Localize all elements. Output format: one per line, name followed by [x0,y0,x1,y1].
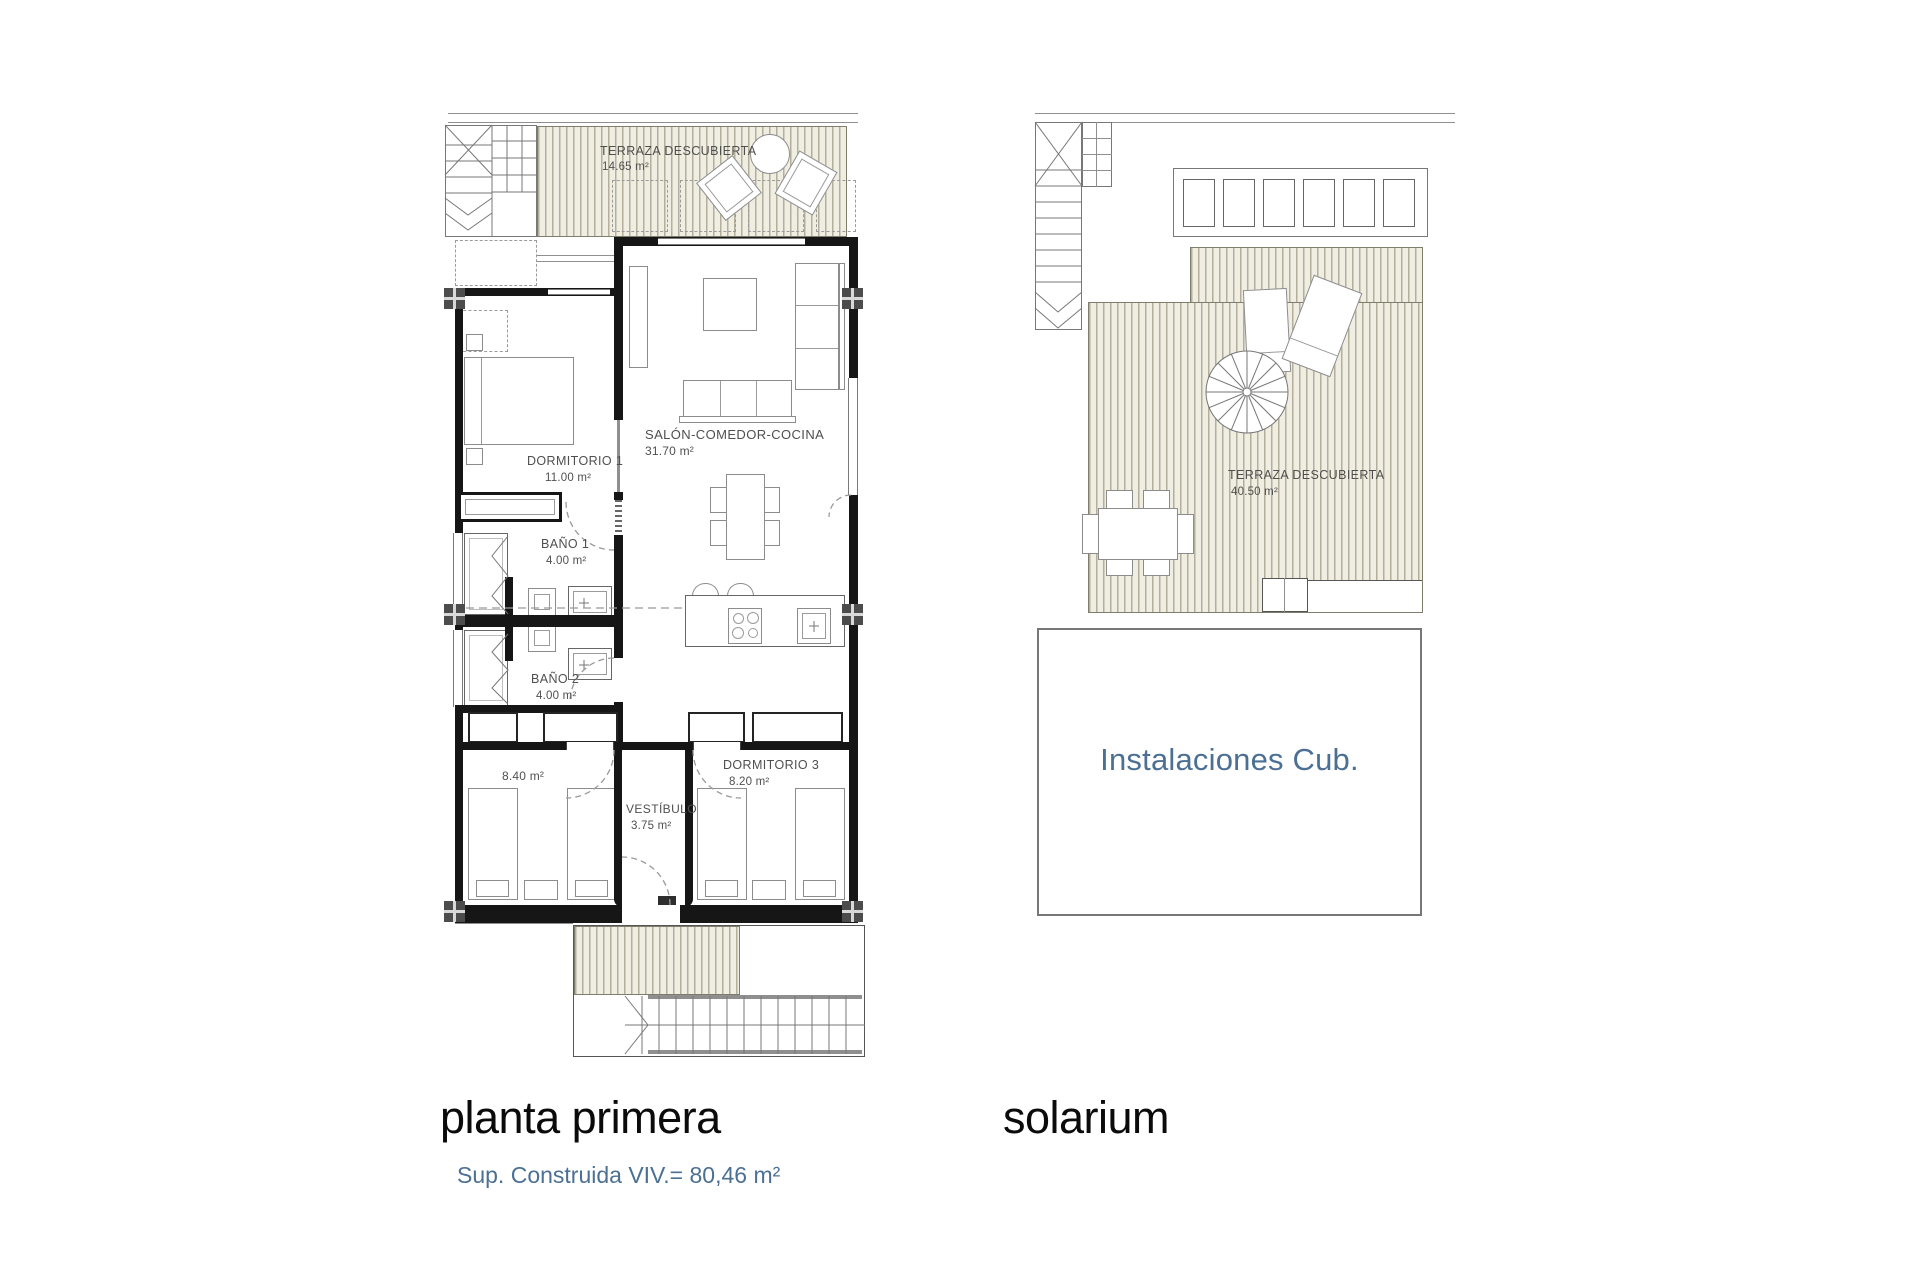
sun-lounger [1243,288,1291,374]
kitchen-sink [797,608,831,644]
wall [455,742,858,750]
stair-handrail [648,995,862,999]
door-opening [566,742,614,750]
nightstand [466,448,483,465]
roof-panel [1223,179,1255,227]
hob [728,608,762,644]
area-label-terraza1: 14.65 m² [602,161,649,174]
pillar [842,288,863,309]
room-label-banio1: BAÑO 1 [541,538,589,552]
porch-edge-line [537,255,614,256]
wall [455,615,623,627]
pergola-slat [612,180,668,232]
pillar [444,604,465,625]
roof-panel [1383,179,1415,227]
built-in-closet [688,712,745,743]
room-label-instalaciones: Instalaciones Cub. [1037,742,1422,778]
window [658,238,805,245]
pillar [842,604,863,625]
bed-pillow [803,880,836,897]
wardrobe [458,492,562,522]
patio-chair [1177,514,1194,554]
room-label-terraza2: TERRAZA DESCUBIERTA [1228,469,1384,483]
wall [614,492,623,500]
sofa-side [795,263,839,390]
nightstand [524,880,558,900]
solarium-stair [1035,122,1082,330]
area-label-dormitorio1: 11.00 m² [545,472,591,485]
toilet [528,624,556,652]
dining-table [726,474,765,560]
roof-panel [1263,179,1295,227]
built-in-closet [752,712,843,743]
pillar [444,901,465,922]
bed-pillow [476,880,509,897]
door-swing-arcs [466,495,851,905]
sofa-side-back [839,263,845,390]
nightstand [466,334,483,351]
grid-line [1082,170,1112,171]
stair-upper [445,125,537,237]
window [548,289,610,295]
area-label-dormitorio2: 8.40 m² [502,770,544,783]
door-opening [693,742,741,750]
deck-cutout [1307,580,1422,612]
sofa-main [683,380,792,418]
area-label-banio1: 4.00 m² [546,555,586,568]
room-label-terraza1: TERRAZA DESCUBIERTA [600,145,756,159]
wall [614,750,622,907]
roof-panel [1303,179,1335,227]
roof-panel [1183,179,1215,227]
area-label-terraza2: 40.50 m² [1231,486,1278,499]
deck-access-box [1262,578,1308,612]
grid-line [1082,154,1112,155]
plot-line [1035,113,1455,114]
floorplan-page: { "colors": { "accent_blue": "#4c7094", … [0,0,1920,1280]
bed-pillow [575,880,608,897]
wall [849,495,858,923]
floor-title-solarium: solarium [1003,1092,1169,1144]
patio-chair [1106,490,1133,509]
room-label-vestibulo: VESTÍBULO [626,803,697,816]
built-area-subtitle: Sup. Construida VIV.= 80,46 m² [457,1162,780,1189]
patio-chair [1143,490,1170,509]
wall [614,243,623,420]
plot-line [448,122,858,123]
room-label-salon: SALÓN-COMEDOR-COCINA [645,428,824,442]
under-stair-porch [455,240,537,286]
wall [455,905,622,923]
wall [505,577,513,661]
area-label-dormitorio3: 8.20 m² [729,776,769,789]
stair-handrail [648,1050,862,1054]
built-in-closet [468,712,518,743]
wall [685,750,693,907]
deck-access-divider [1284,578,1285,612]
patio-chair [1082,514,1099,554]
vanity-sink [568,586,612,618]
lower-deck [574,926,740,995]
pillar [842,901,863,922]
tv-table [703,278,757,331]
linework-overlay [0,0,1920,1280]
area-label-banio2: 4.00 m² [536,690,576,703]
wall [614,535,623,658]
patio-table [1098,508,1178,560]
built-in-closet [543,712,618,743]
plot-line [448,113,858,114]
wall [680,905,858,923]
room-label-banio2: BAÑO 2 [531,673,579,687]
roof-panel [1343,179,1375,227]
door-leaf [615,500,622,535]
double-bed [464,357,574,445]
window [453,630,463,707]
room-label-dormitorio1: DORMITORIO 1 [527,455,623,469]
entrance-door-leaf [658,896,676,905]
bed-pillow [705,880,738,897]
nightstand [752,880,786,900]
salon-cupboard [629,266,648,368]
floor-title-planta-primera: planta primera [440,1092,721,1144]
sofa-main-base [679,416,796,423]
area-label-vestibulo: 3.75 m² [631,820,671,833]
toilet [528,588,556,616]
shower [464,533,508,615]
porch-edge-line [537,261,614,262]
plot-line [455,923,573,924]
grid-line [1082,138,1112,139]
room-label-dormitorio3: DORMITORIO 3 [723,759,819,773]
window [453,533,463,613]
area-label-salon: 31.70 m² [645,445,694,458]
shower [464,630,508,706]
pillar [444,288,465,309]
window [848,378,858,495]
